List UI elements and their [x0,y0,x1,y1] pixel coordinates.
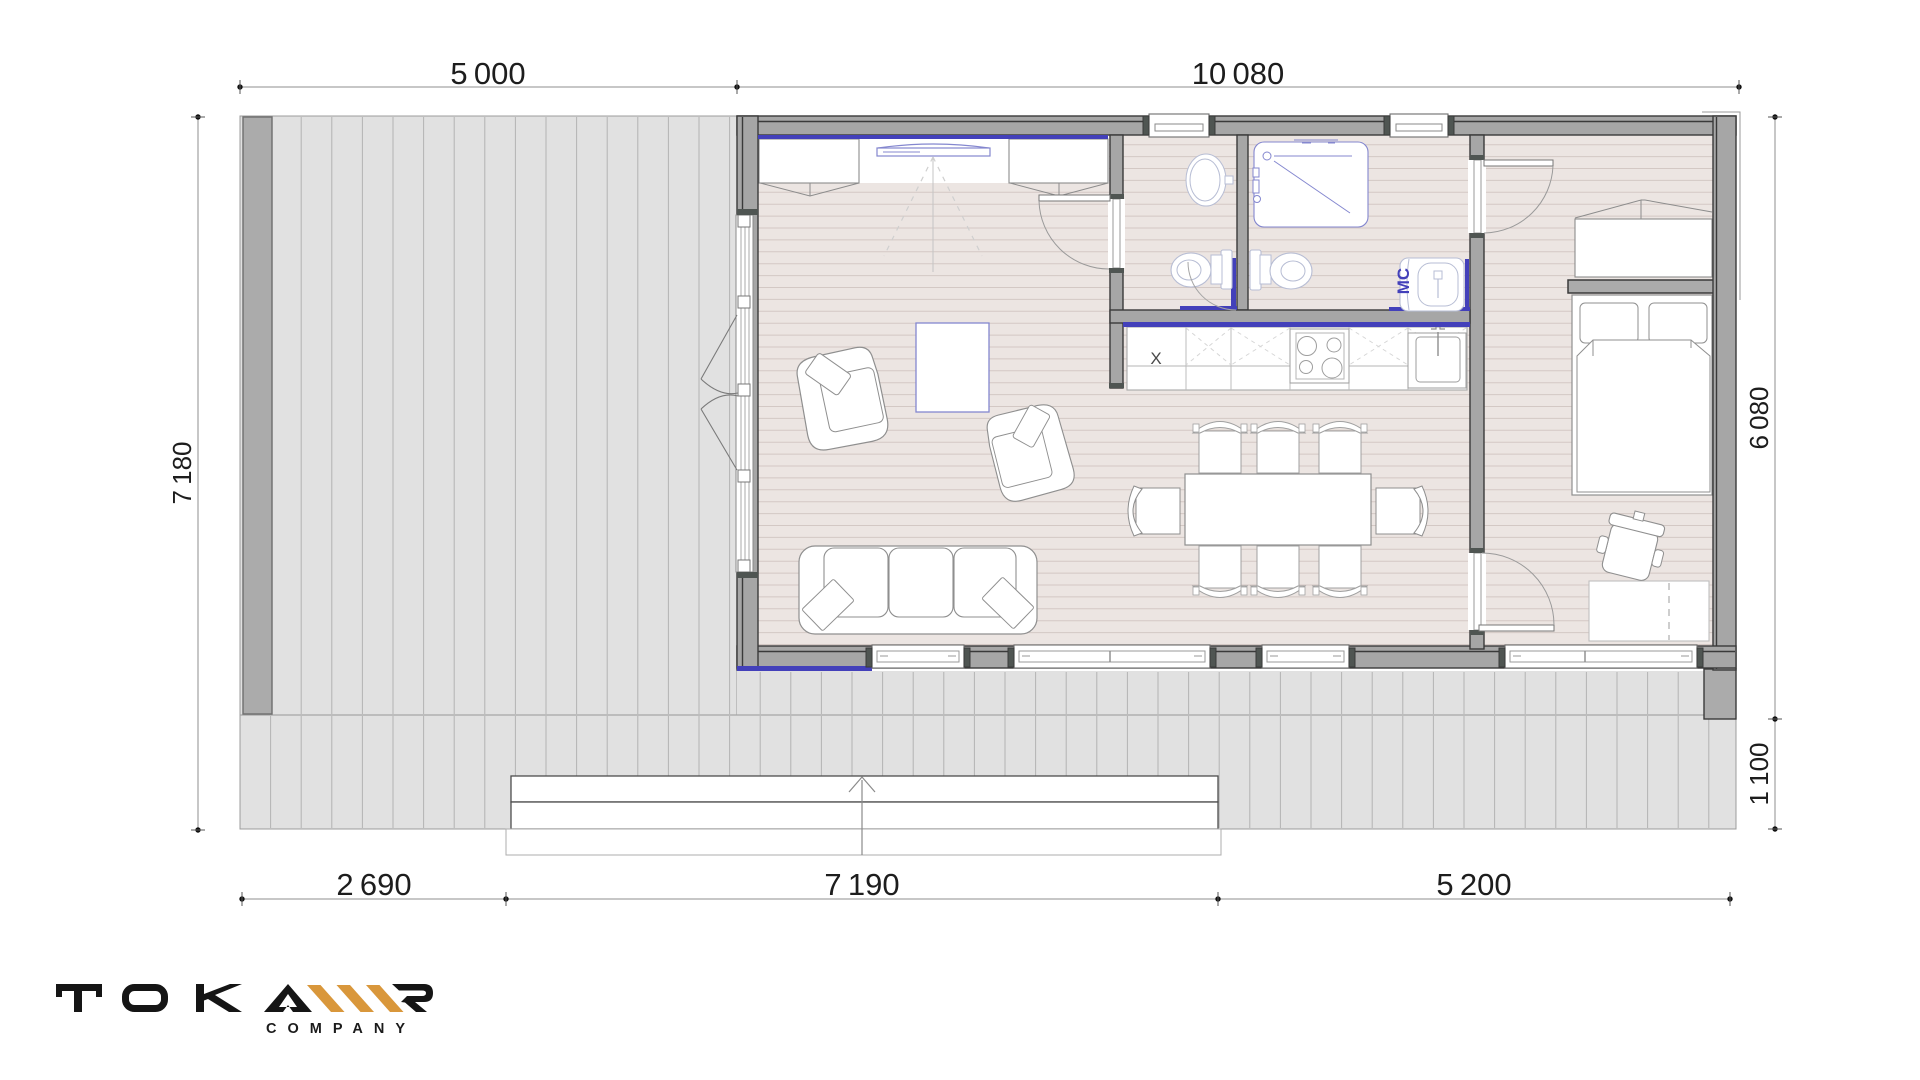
svg-text:5 200: 5 200 [1436,867,1511,902]
svg-text:6 080: 6 080 [1744,386,1774,449]
svg-text:7 190: 7 190 [824,867,899,902]
svg-text:2 690: 2 690 [336,867,411,902]
svg-text:MC: MC [1394,268,1413,294]
svg-text:10 080: 10 080 [1192,56,1284,91]
svg-text:X: X [1150,349,1161,368]
svg-text:5 000: 5 000 [450,56,525,91]
svg-text:1 100: 1 100 [1744,742,1774,805]
svg-text:7 180: 7 180 [167,441,197,504]
svg-text:COMPANY: COMPANY [266,1021,416,1037]
